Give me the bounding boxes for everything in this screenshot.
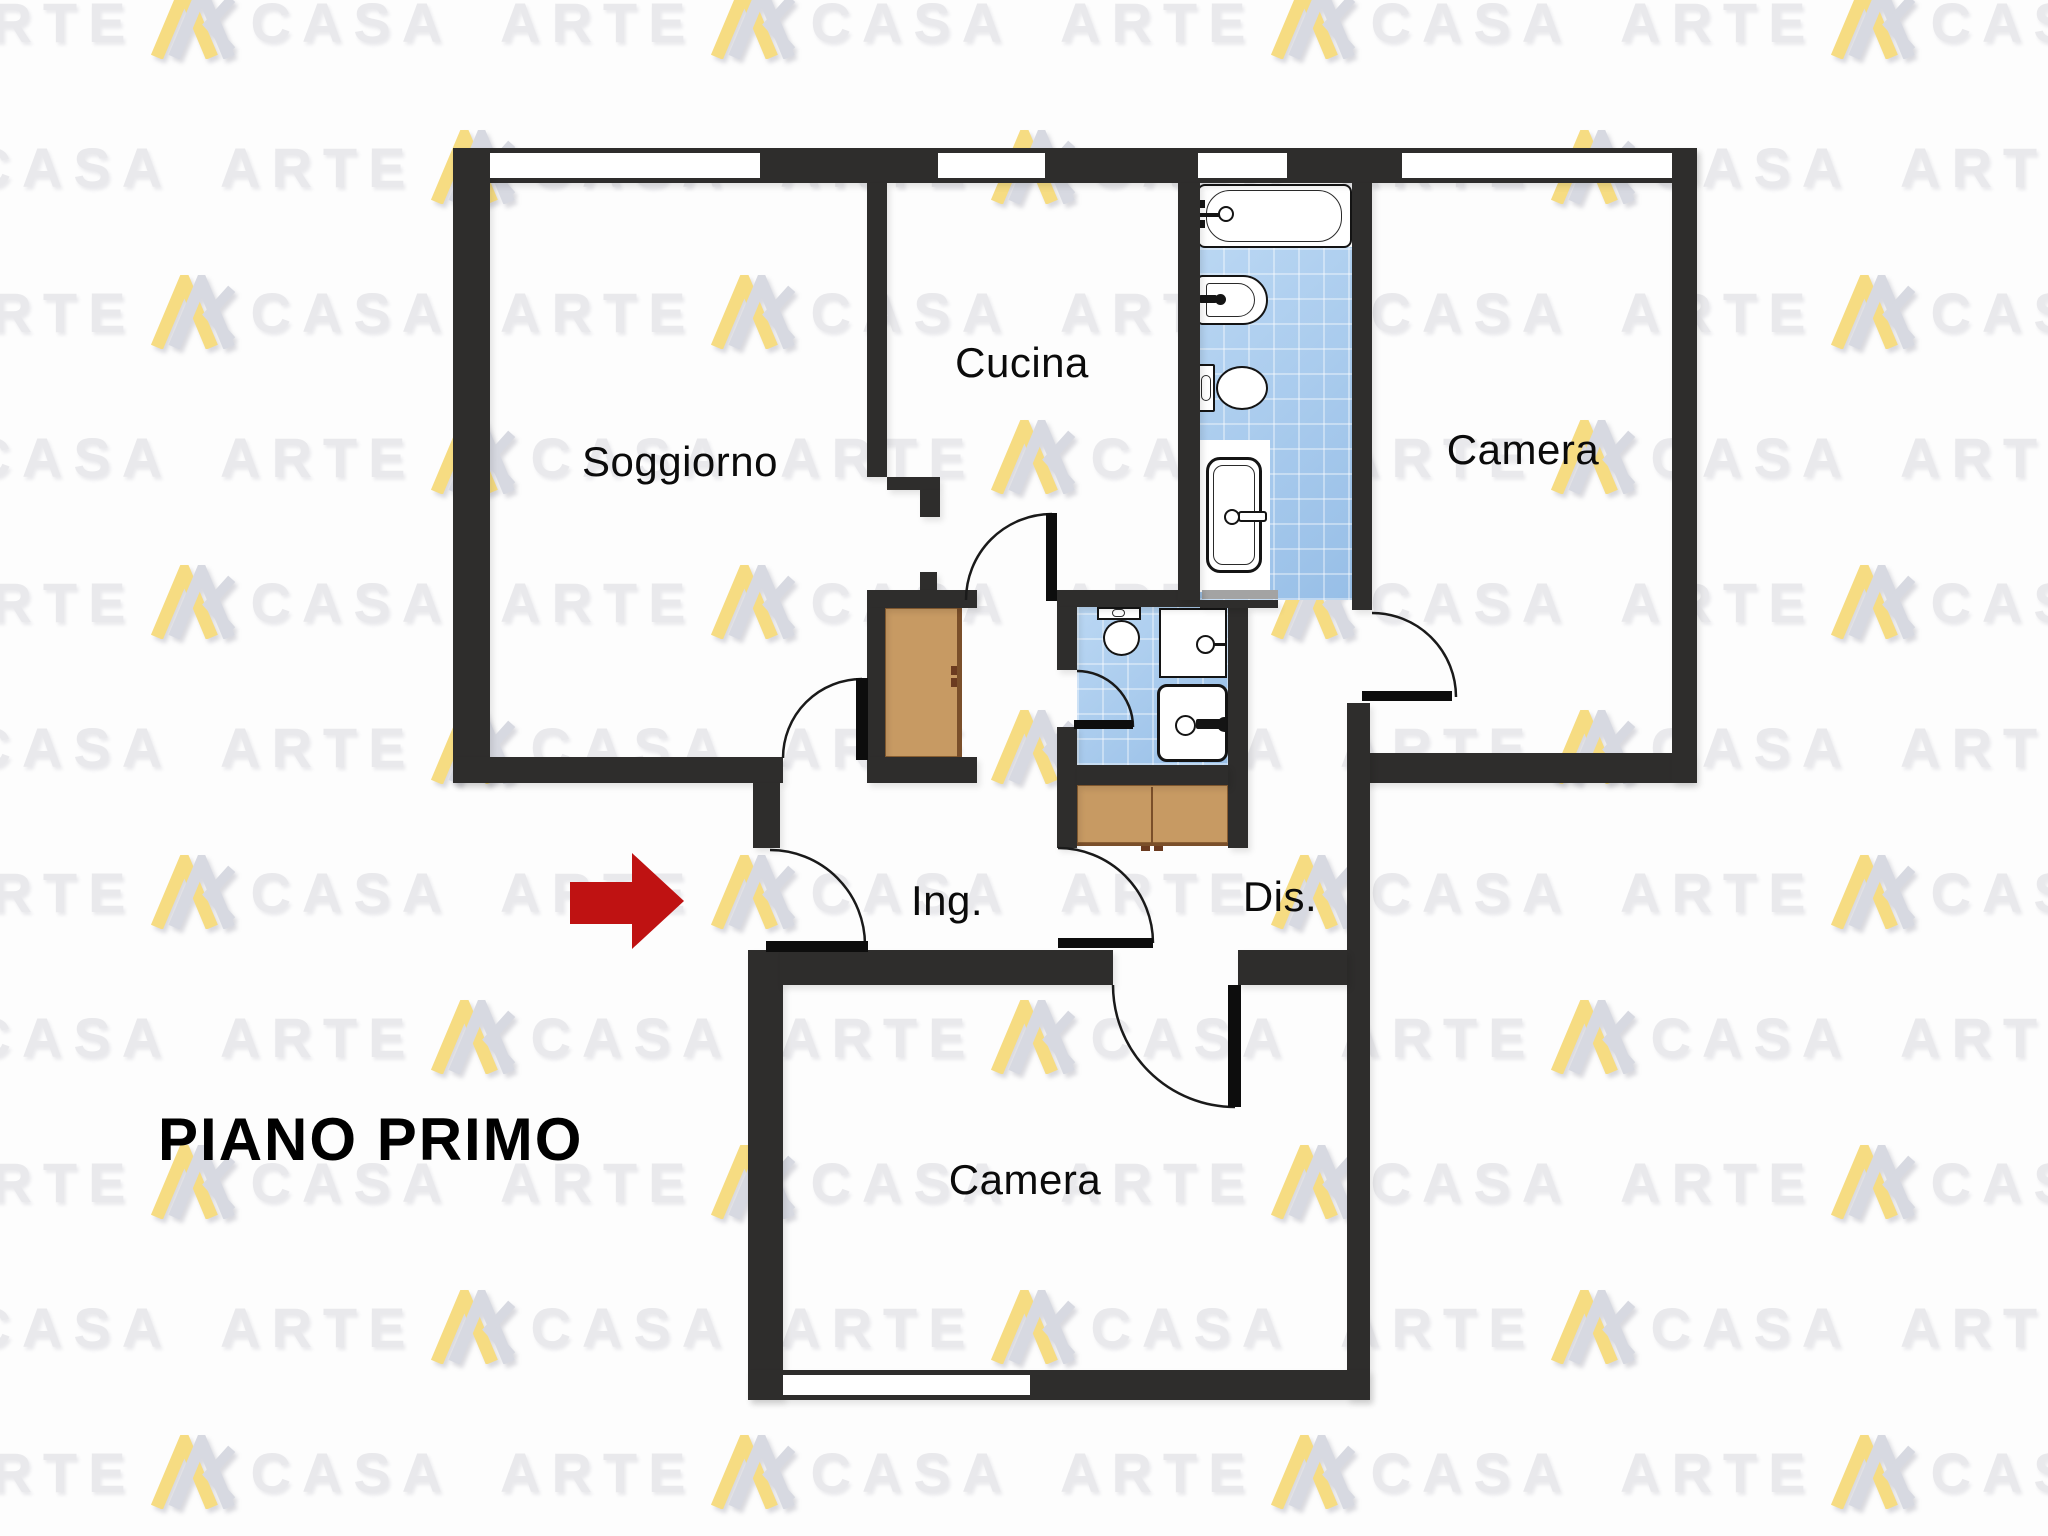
labels-layer: SoggiornoCucinaCameraIng.Dis.Camera (0, 0, 2048, 1536)
room-label-disimpegno: Dis. (1243, 873, 1317, 921)
floor-plan-page: ARTECASAARTECASAARTECASAARTECASAARTECASA… (0, 0, 2048, 1536)
room-label-ingresso: Ing. (911, 877, 983, 925)
page-title: PIANO PRIMO (158, 1105, 583, 1174)
entrance-arrow-tip (632, 853, 684, 949)
room-label-camera-sud: Camera (949, 1156, 1101, 1204)
room-label-camera-nord: Camera (1447, 426, 1599, 474)
room-label-cucina: Cucina (955, 339, 1089, 387)
entrance-arrow (570, 882, 632, 924)
room-label-soggiorno: Soggiorno (582, 438, 778, 486)
